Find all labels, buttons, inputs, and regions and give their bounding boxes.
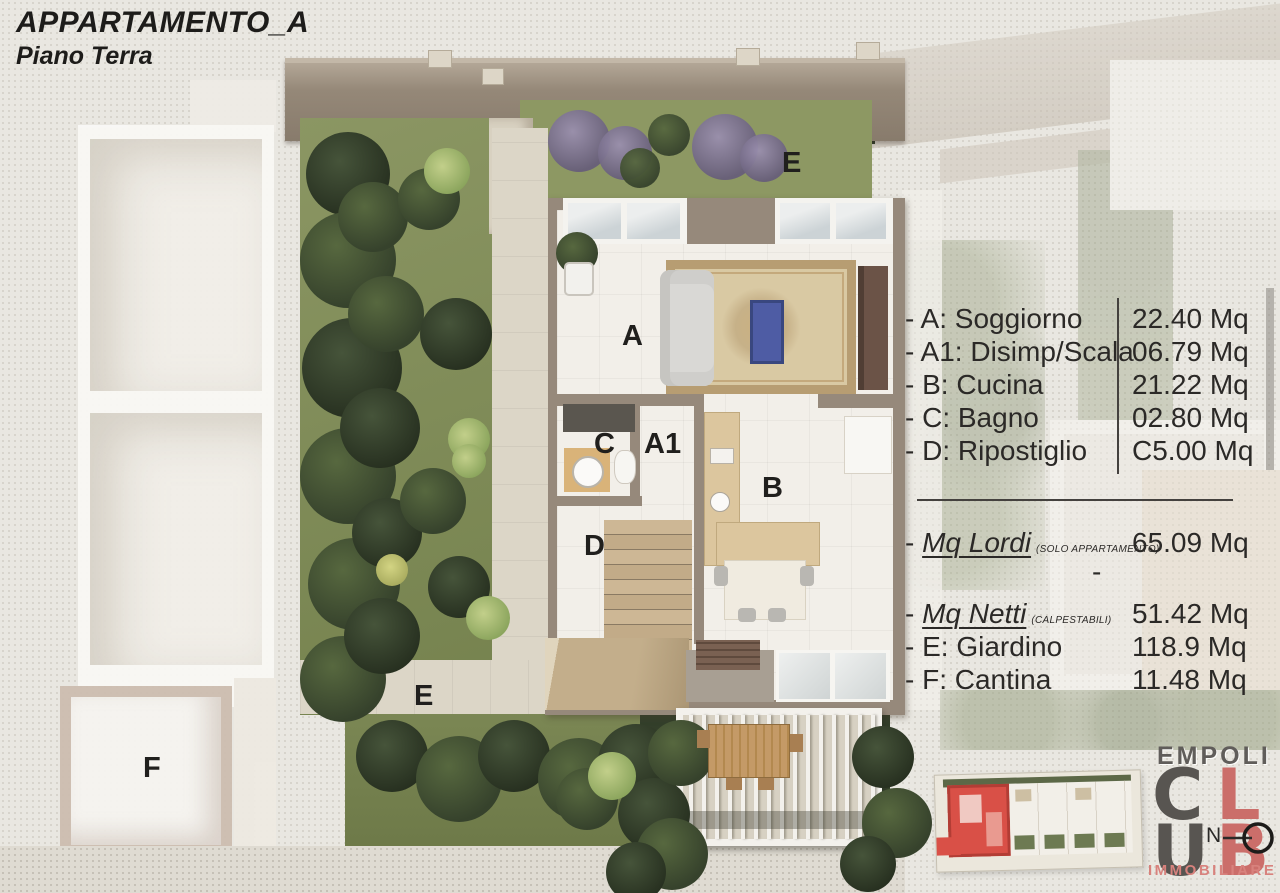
keyplan-garden — [1104, 833, 1124, 848]
keyplan-garden — [1044, 834, 1064, 849]
keyplan-units — [1009, 781, 1133, 856]
keyplan-detail — [1015, 789, 1031, 801]
compass-icon: N — [1206, 816, 1276, 865]
floor-plan-sheet: APPARTAMENTO_A Piano Terra — [0, 0, 1280, 893]
unit-room — [959, 794, 982, 823]
agency-logo: EMPOLI C L U B IMMOBILIARE N — [0, 0, 1280, 893]
compass-north-label: N — [1206, 824, 1221, 848]
key-plan-thumbnail — [934, 769, 1143, 872]
keyplan-garden — [1074, 834, 1094, 849]
highlighted-unit-tab — [936, 837, 960, 856]
unit-room — [986, 812, 1003, 846]
keyplan-detail — [1075, 788, 1091, 800]
keyplan-garden — [1014, 835, 1034, 850]
